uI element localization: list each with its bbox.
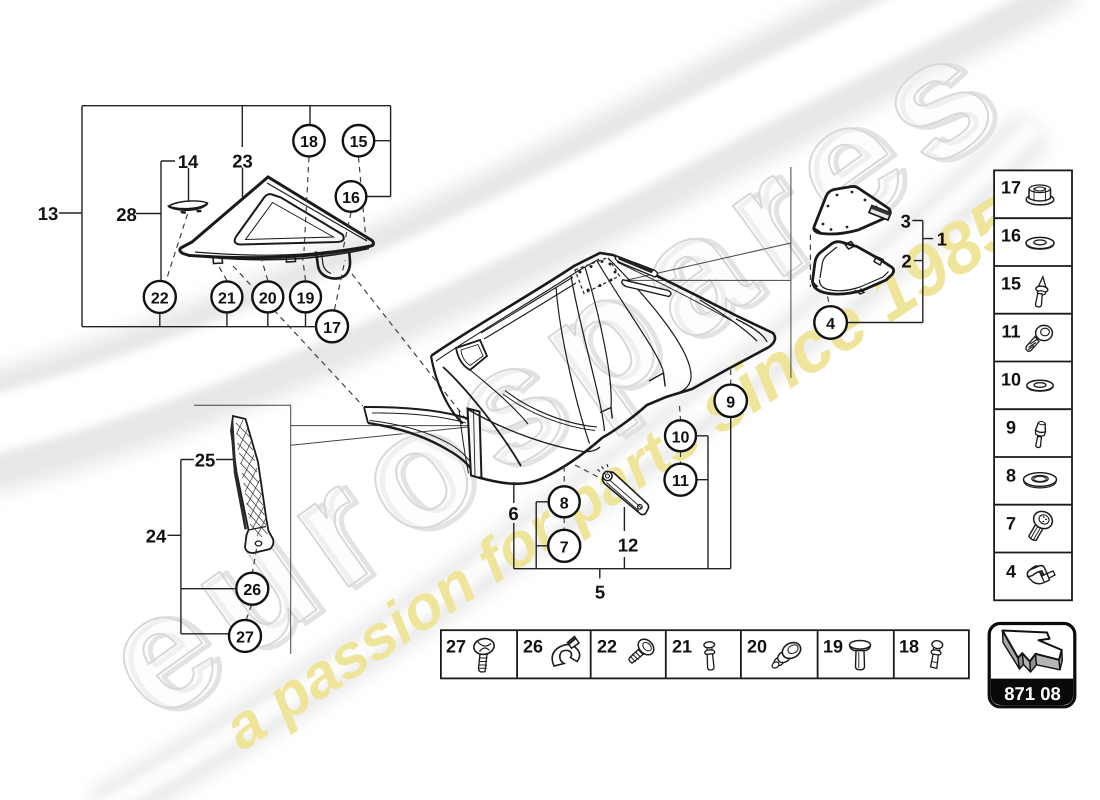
svg-text:17: 17 [323, 320, 341, 337]
svg-text:26: 26 [243, 582, 261, 599]
svg-text:2: 2 [901, 251, 911, 272]
svg-text:8: 8 [1006, 466, 1016, 486]
svg-text:14: 14 [178, 151, 199, 172]
svg-text:21: 21 [218, 290, 236, 307]
svg-text:16: 16 [342, 190, 360, 207]
svg-text:5: 5 [595, 582, 605, 603]
svg-text:3: 3 [901, 211, 911, 232]
svg-text:12: 12 [618, 535, 639, 556]
svg-text:18: 18 [300, 134, 318, 151]
svg-text:15: 15 [350, 134, 368, 151]
svg-text:6: 6 [508, 503, 518, 524]
svg-text:24: 24 [146, 525, 167, 546]
svg-text:19: 19 [297, 290, 315, 307]
svg-text:18: 18 [899, 637, 919, 657]
svg-text:1: 1 [937, 229, 947, 250]
svg-text:871 08: 871 08 [1004, 683, 1061, 704]
svg-text:23: 23 [232, 151, 253, 172]
svg-text:20: 20 [259, 290, 277, 307]
svg-text:25: 25 [195, 450, 216, 471]
svg-text:21: 21 [672, 637, 692, 657]
svg-text:9: 9 [1006, 418, 1016, 438]
svg-text:28: 28 [116, 204, 137, 225]
svg-text:27: 27 [236, 629, 254, 646]
svg-text:27: 27 [446, 637, 466, 657]
svg-text:7: 7 [560, 539, 569, 556]
svg-text:4: 4 [1006, 562, 1016, 582]
svg-text:4: 4 [826, 316, 835, 333]
svg-text:10: 10 [1001, 370, 1021, 390]
svg-text:11: 11 [1001, 322, 1020, 342]
svg-text:26: 26 [523, 637, 543, 657]
svg-text:17: 17 [1001, 178, 1021, 198]
svg-text:20: 20 [747, 637, 767, 657]
svg-text:16: 16 [1001, 226, 1021, 246]
svg-text:19: 19 [823, 637, 843, 657]
svg-text:15: 15 [1001, 274, 1021, 294]
svg-text:9: 9 [726, 394, 735, 411]
svg-text:7: 7 [1006, 514, 1016, 534]
svg-text:10: 10 [672, 429, 690, 446]
svg-text:22: 22 [151, 290, 169, 307]
svg-text:8: 8 [560, 495, 569, 512]
svg-text:13: 13 [38, 203, 59, 224]
svg-text:22: 22 [597, 637, 617, 657]
svg-text:11: 11 [672, 473, 689, 490]
